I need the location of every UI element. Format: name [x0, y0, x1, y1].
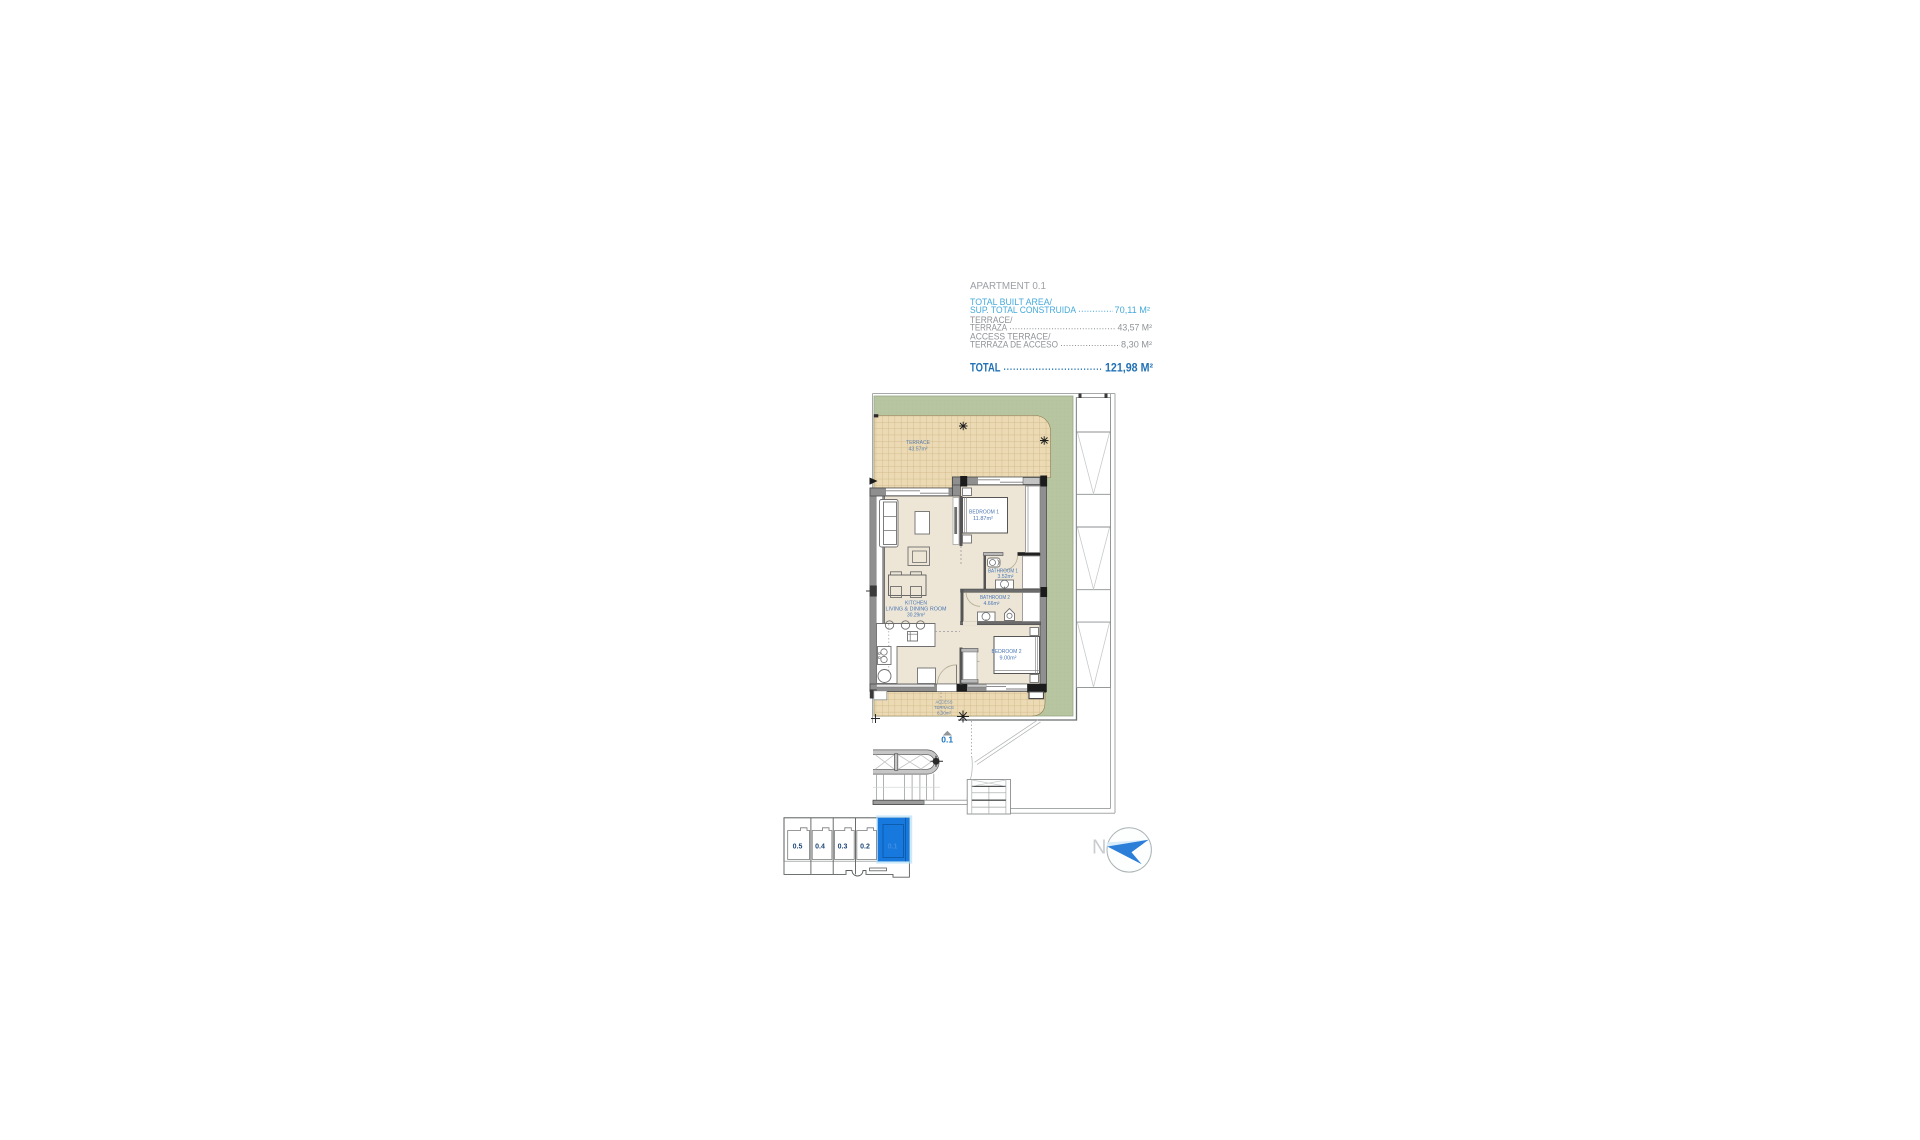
svg-text:4.66m²: 4.66m²	[984, 601, 1000, 607]
svg-text:APARTMENT 0.1: APARTMENT 0.1	[970, 280, 1046, 292]
svg-text:0.3: 0.3	[838, 844, 848, 851]
svg-text:0.2: 0.2	[860, 844, 870, 851]
svg-text:SUP. TOTAL CONSTRUIDA: SUP. TOTAL CONSTRUIDA	[970, 305, 1076, 315]
svg-text:43.57m²: 43.57m²	[909, 447, 928, 453]
svg-text:BEDROOM 2: BEDROOM 2	[992, 649, 1022, 655]
svg-text:0.5: 0.5	[793, 844, 803, 851]
svg-text:8,30 M²: 8,30 M²	[1121, 339, 1152, 349]
svg-text:8.30m²: 8.30m²	[937, 711, 951, 716]
svg-text:3.52m²: 3.52m²	[998, 574, 1014, 580]
svg-text:BEDROOM 1: BEDROOM 1	[969, 510, 999, 516]
svg-text:0.4: 0.4	[815, 844, 825, 851]
svg-text:9.00m²: 9.00m²	[1000, 656, 1017, 662]
svg-text:N: N	[1092, 837, 1106, 859]
svg-text:TERRACE: TERRACE	[934, 705, 954, 710]
svg-text:TERRAZA DE ACCESO: TERRAZA DE ACCESO	[970, 339, 1058, 349]
svg-text:0.1: 0.1	[888, 844, 898, 851]
svg-text:11.87m²: 11.87m²	[973, 516, 993, 522]
svg-text:43,57 M²: 43,57 M²	[1118, 323, 1153, 333]
svg-text:ACCESS: ACCESS	[936, 700, 953, 705]
svg-text:TOTAL: TOTAL	[970, 362, 1001, 374]
svg-text:70,11 M²: 70,11 M²	[1115, 305, 1151, 315]
svg-text:TERRACE: TERRACE	[906, 440, 930, 446]
svg-text:121,98 M²: 121,98 M²	[1105, 362, 1153, 374]
svg-text:30.29m²: 30.29m²	[907, 613, 925, 619]
svg-text:0.1: 0.1	[941, 734, 953, 744]
